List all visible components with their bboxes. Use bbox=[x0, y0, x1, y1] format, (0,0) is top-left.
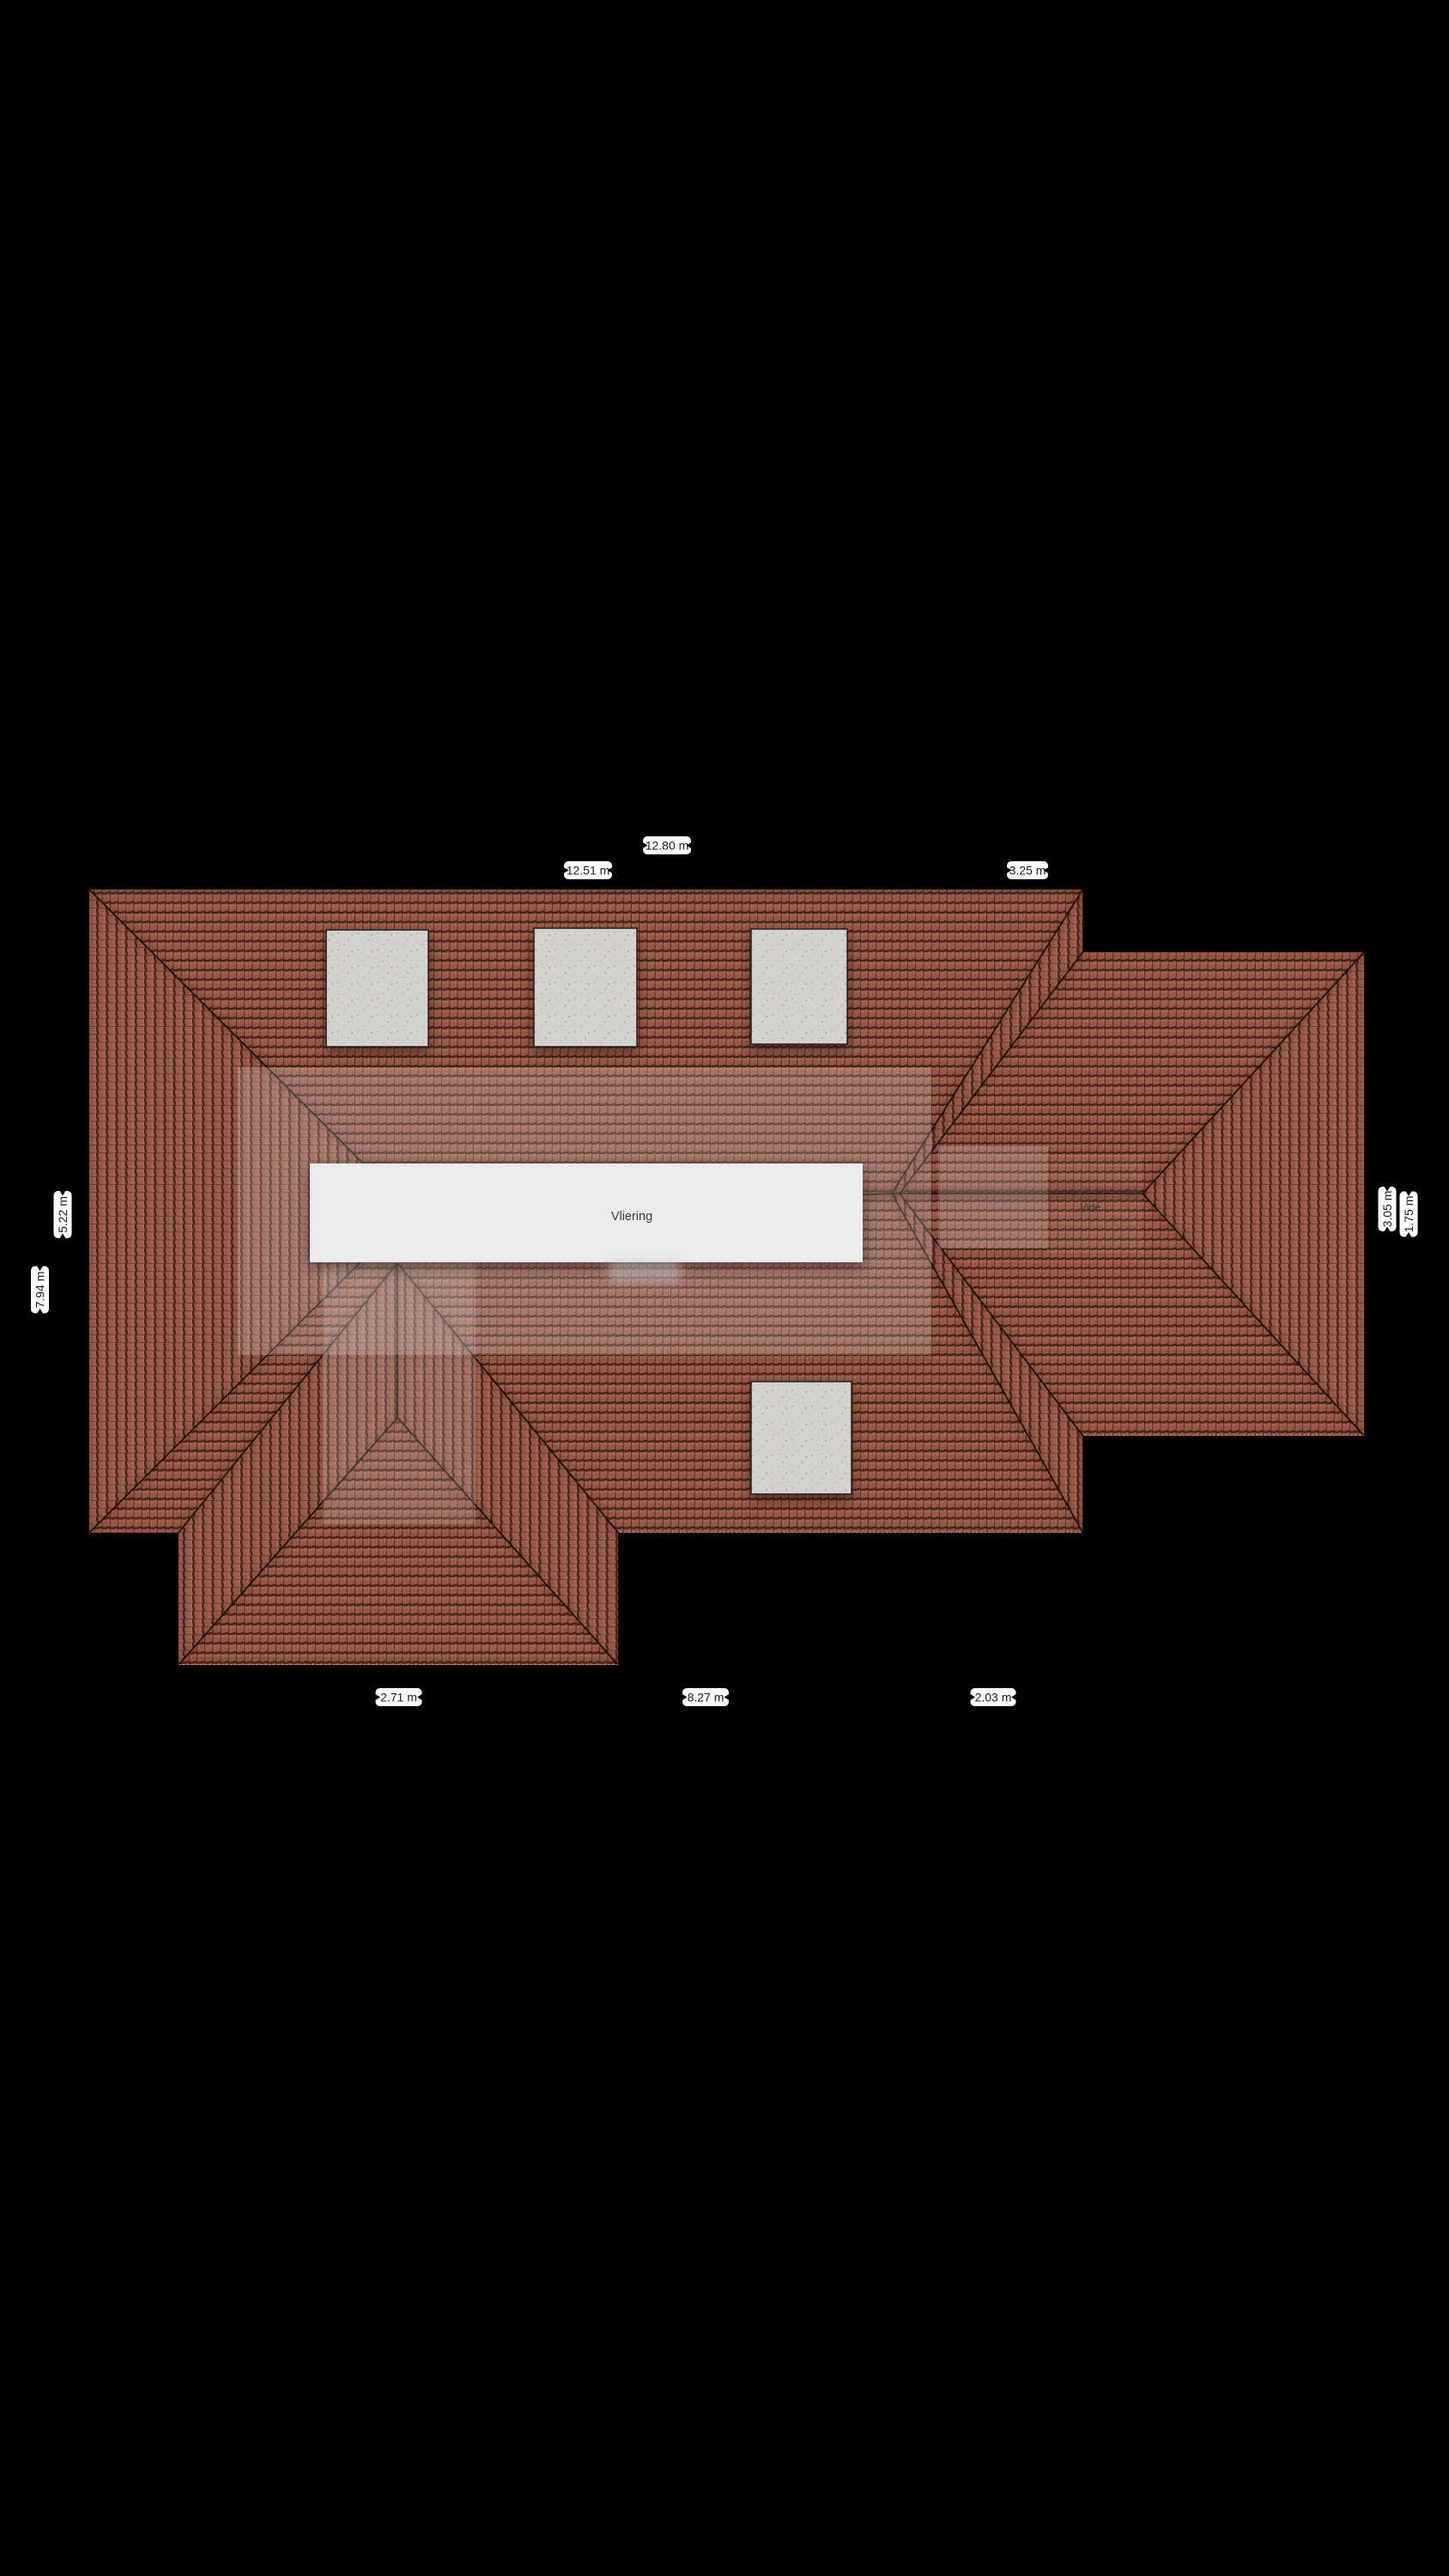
svg-text:7.94 m: 7.94 m bbox=[33, 1272, 47, 1309]
svg-text:3.05 m: 3.05 m bbox=[1380, 1191, 1394, 1228]
svg-text:Vide: Vide bbox=[1080, 1201, 1100, 1213]
svg-text:12.51 m: 12.51 m bbox=[567, 864, 610, 878]
svg-text:8.27 m: 8.27 m bbox=[688, 1691, 724, 1704]
svg-text:2.03 m: 2.03 m bbox=[975, 1691, 1012, 1704]
svg-text:2.71 m: 2.71 m bbox=[380, 1691, 417, 1704]
svg-text:Vliering: Vliering bbox=[611, 1210, 652, 1224]
svg-text:1.75 m: 1.75 m bbox=[1402, 1196, 1416, 1233]
svg-text:5.22 m: 5.22 m bbox=[56, 1196, 70, 1233]
svg-text:3.25 m: 3.25 m bbox=[1009, 864, 1046, 878]
svg-text:12.80 m: 12.80 m bbox=[646, 839, 689, 853]
